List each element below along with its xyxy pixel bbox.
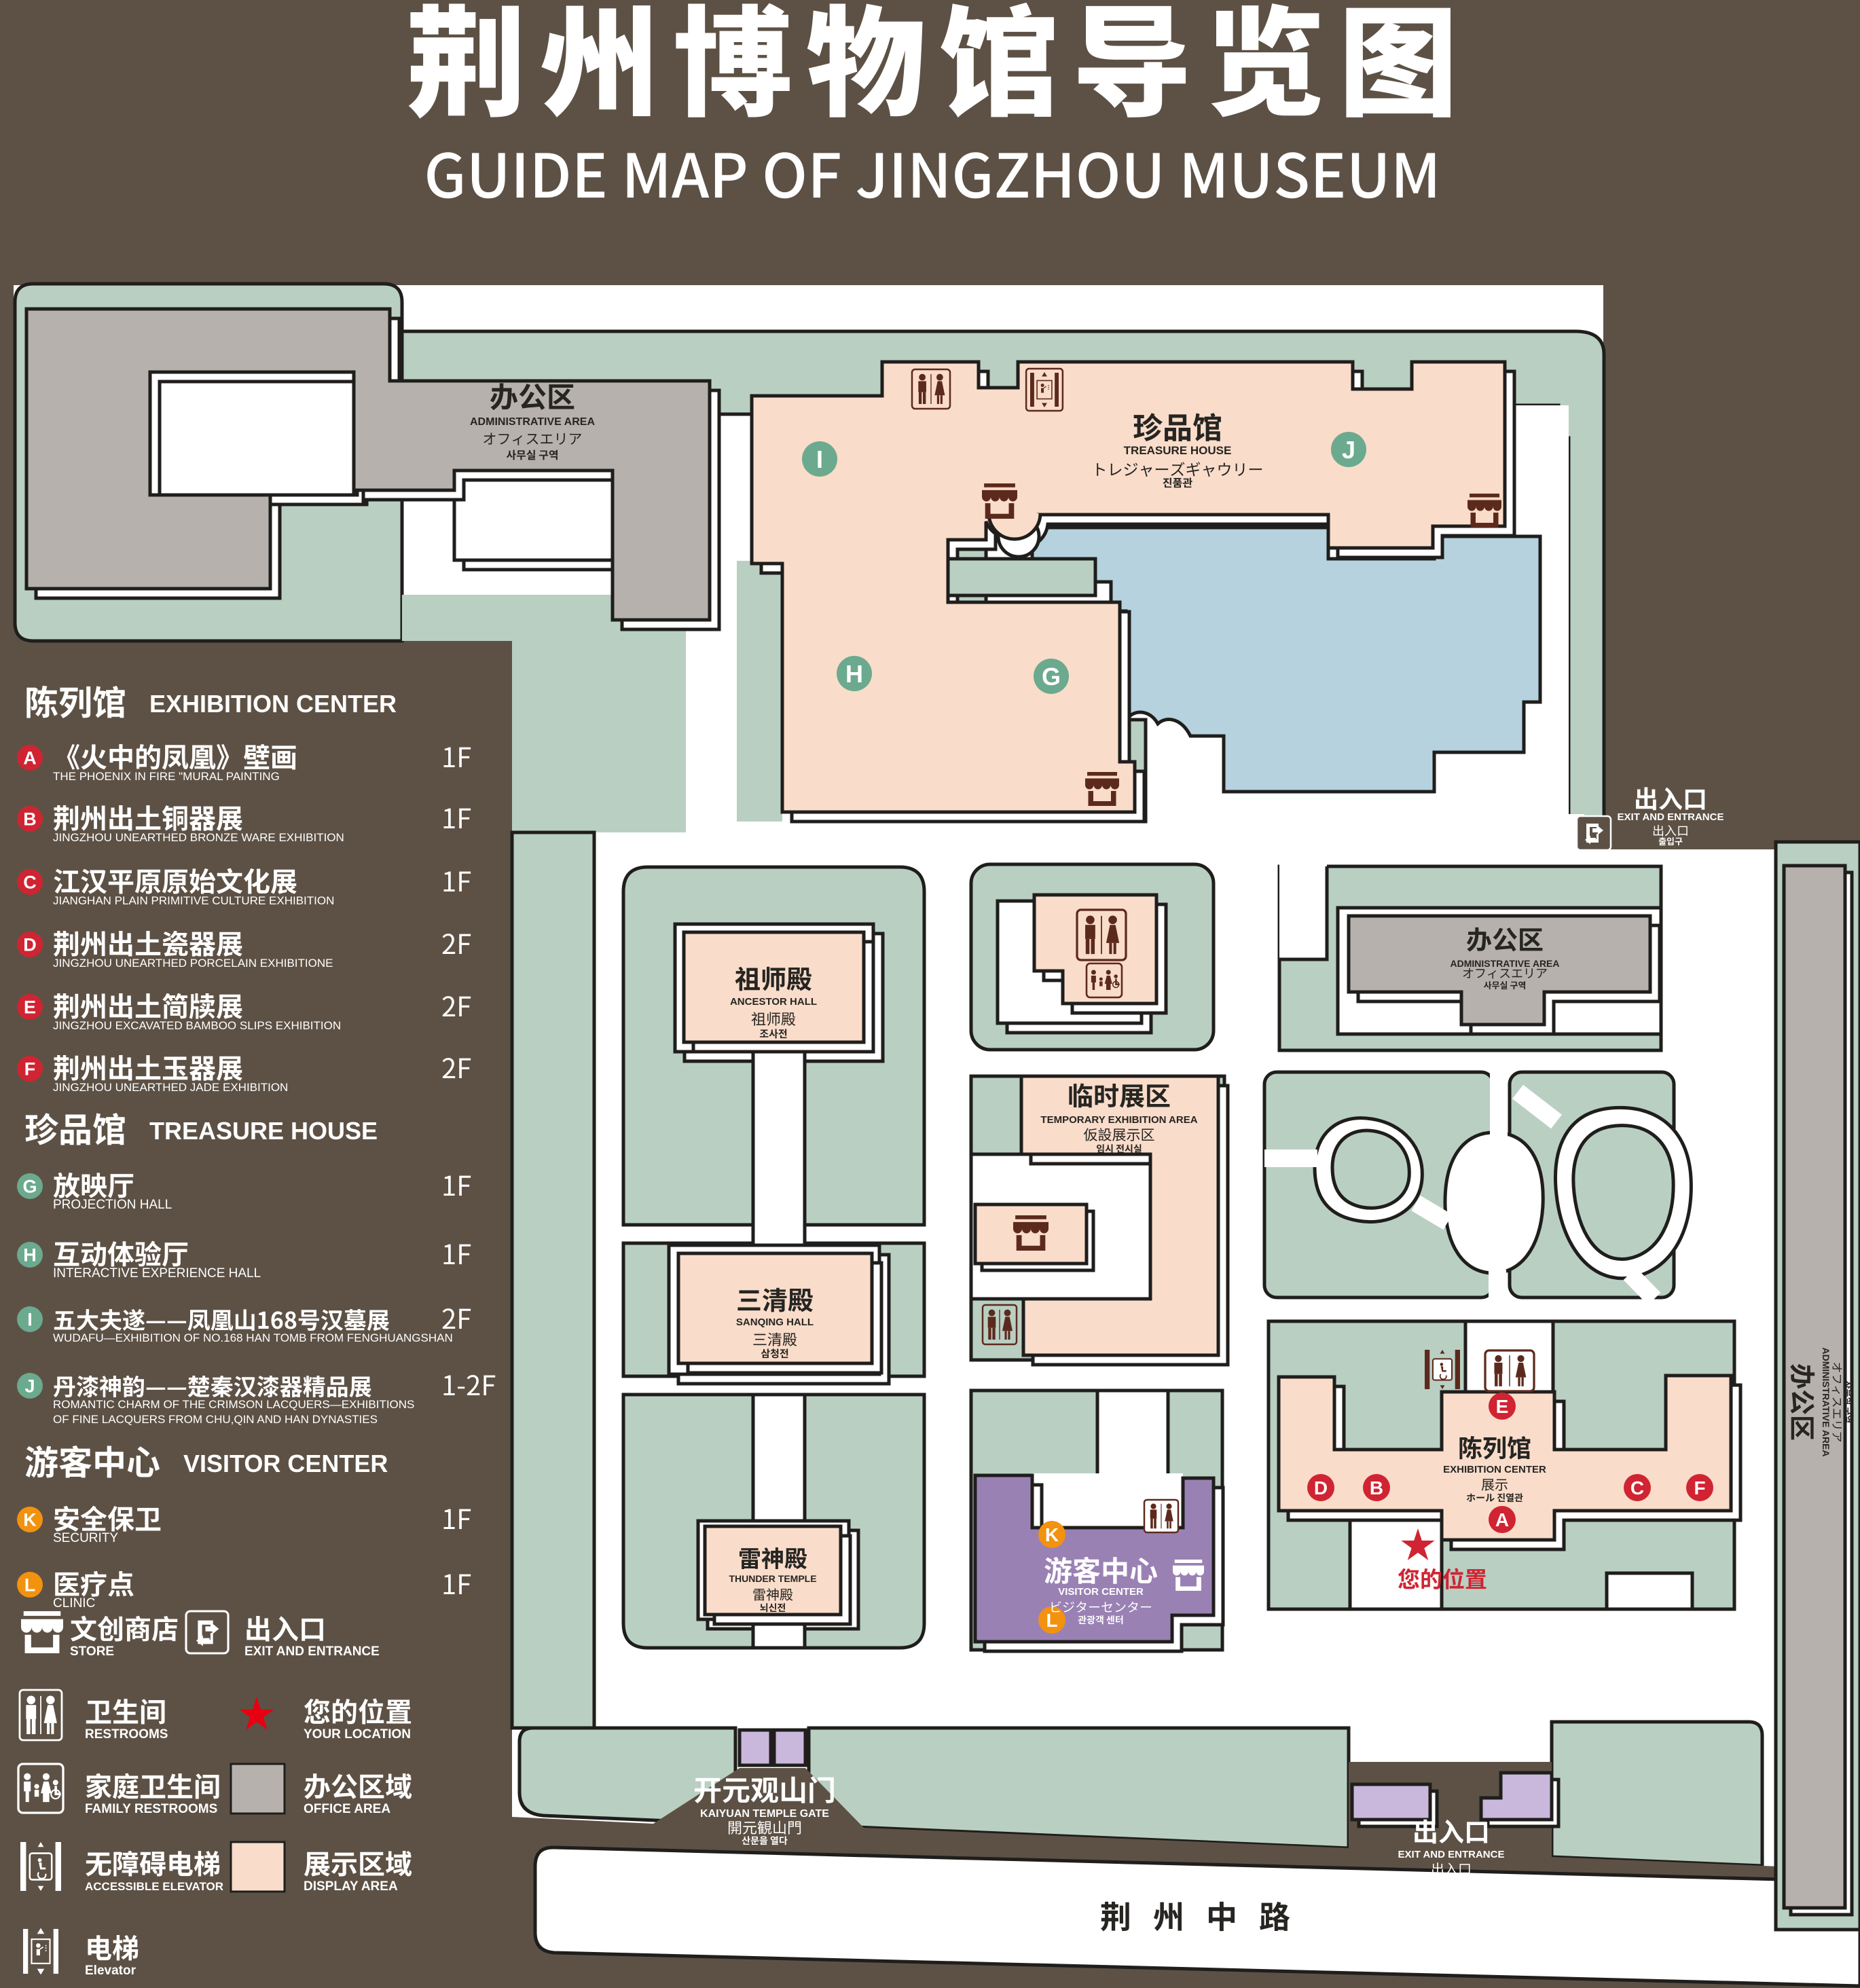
svg-text:A: A	[23, 748, 37, 769]
svg-text:ADMINISTRATIVE AREA: ADMINISTRATIVE AREA	[470, 416, 595, 428]
svg-text:C: C	[1630, 1477, 1644, 1498]
svg-text:K: K	[23, 1510, 37, 1530]
svg-text:L: L	[1046, 1610, 1057, 1631]
svg-text:JINGZHOU UNEARTHED PORCELAIN E: JINGZHOU UNEARTHED PORCELAIN EXHIBITIONE	[53, 957, 333, 970]
svg-text:L: L	[24, 1575, 36, 1596]
svg-text:EXIT AND ENTRANCE: EXIT AND ENTRANCE	[1398, 1849, 1505, 1860]
svg-text:THE PHOENIX IN FIRE "MURAL PAI: THE PHOENIX IN FIRE "MURAL PAINTING	[53, 770, 280, 783]
svg-text:DISPLAY AREA: DISPLAY AREA	[304, 1879, 398, 1894]
svg-text:OFFICE AREA: OFFICE AREA	[304, 1802, 390, 1816]
svg-text:E: E	[24, 997, 36, 1018]
svg-text:H: H	[845, 660, 863, 688]
svg-text:G: G	[1042, 663, 1061, 691]
svg-text:EXIT AND ENTRANCE: EXIT AND ENTRANCE	[1618, 811, 1724, 823]
svg-text:JIANGHAN PLAIN PRIMITIVE CULTU: JIANGHAN PLAIN PRIMITIVE CULTURE EXHIBIT…	[53, 894, 334, 907]
svg-text:KAIYUAN TEMPLE GATE: KAIYUAN TEMPLE GATE	[700, 1808, 829, 1820]
svg-text:YOUR LOCATION: YOUR LOCATION	[304, 1727, 411, 1742]
svg-text:RESTROOMS: RESTROOMS	[85, 1727, 168, 1742]
svg-text:F: F	[1694, 1477, 1705, 1498]
svg-text:K: K	[1045, 1524, 1059, 1545]
svg-text:ACCESSIBLE ELEVATOR: ACCESSIBLE ELEVATOR	[85, 1880, 223, 1893]
svg-text:H: H	[23, 1245, 37, 1266]
svg-text:JINGZHOU UNEARTHED JADE EXHIBI: JINGZHOU UNEARTHED JADE EXHIBITION	[53, 1081, 288, 1094]
svg-text:CLINIC: CLINIC	[53, 1596, 95, 1610]
svg-text:ADMINISTRATIVE AREA: ADMINISTRATIVE AREA	[1451, 958, 1560, 969]
svg-text:FAMILY RESTROOMS: FAMILY RESTROOMS	[85, 1802, 217, 1816]
svg-text:INTERACTIVE EXPERIENCE HALL: INTERACTIVE EXPERIENCE HALL	[53, 1266, 261, 1281]
svg-text:WUDAFU—EXHIBITION OF NO.168 HA: WUDAFU—EXHIBITION OF NO.168 HAN TOMB FRO…	[53, 1331, 453, 1344]
svg-text:JINGZHOU EXCAVATED BAMBOO SLIP: JINGZHOU EXCAVATED BAMBOO SLIPS EXHIBITI…	[53, 1019, 341, 1032]
svg-text:F: F	[24, 1059, 36, 1080]
svg-text:JINGZHOU UNEARTHED BRONZE WARE: JINGZHOU UNEARTHED BRONZE WARE EXHIBITIO…	[53, 831, 344, 844]
svg-text:ROMANTIC CHARM OF THE CRIMSON: ROMANTIC CHARM OF THE CRIMSON LACQUERS—E…	[53, 1398, 414, 1411]
svg-text:ADMINISTRATIVE AREA: ADMINISTRATIVE AREA	[1821, 1348, 1831, 1457]
svg-text:ANCESTOR HALL: ANCESTOR HALL	[730, 996, 817, 1008]
svg-text:C: C	[23, 872, 37, 893]
svg-text:OF FINE LACQUERS FROM CHU,QIN: OF FINE LACQUERS FROM CHU,QIN AND HAN DY…	[53, 1413, 378, 1426]
svg-text:B: B	[1370, 1477, 1383, 1498]
svg-text:VISITOR CENTER: VISITOR CENTER	[1058, 1586, 1144, 1598]
svg-text:EXIT AND ENTRANCE: EXIT AND ENTRANCE	[244, 1644, 380, 1659]
svg-text:TREASURE HOUSE: TREASURE HOUSE	[149, 1117, 378, 1145]
svg-text:EXHIBITION CENTER: EXHIBITION CENTER	[149, 690, 397, 718]
svg-text:THUNDER TEMPLE: THUNDER TEMPLE	[729, 1573, 816, 1584]
svg-text:PROJECTION HALL: PROJECTION HALL	[53, 1198, 172, 1212]
svg-text:Elevator: Elevator	[85, 1964, 136, 1978]
svg-text:D: D	[1314, 1477, 1328, 1498]
svg-text:G: G	[22, 1177, 37, 1197]
svg-text:E: E	[1496, 1396, 1509, 1417]
svg-text:VISITOR CENTER: VISITOR CENTER	[183, 1450, 388, 1477]
svg-text:A: A	[1495, 1509, 1509, 1530]
svg-text:J: J	[24, 1376, 35, 1397]
svg-text:STORE: STORE	[70, 1644, 114, 1659]
svg-text:SECURITY: SECURITY	[53, 1531, 118, 1545]
svg-text:TEMPORARY EXHIBITION AREA: TEMPORARY EXHIBITION AREA	[1040, 1114, 1197, 1126]
svg-text:SANQING HALL: SANQING HALL	[736, 1317, 814, 1328]
svg-text:D: D	[23, 935, 37, 955]
svg-text:I: I	[816, 445, 823, 473]
svg-text:B: B	[23, 809, 37, 830]
svg-text:I: I	[27, 1310, 33, 1330]
svg-text:EXHIBITION CENTER: EXHIBITION CENTER	[1443, 1464, 1546, 1475]
svg-text:J: J	[1342, 436, 1355, 464]
svg-text:TREASURE HOUSE: TREASURE HOUSE	[1124, 444, 1232, 457]
